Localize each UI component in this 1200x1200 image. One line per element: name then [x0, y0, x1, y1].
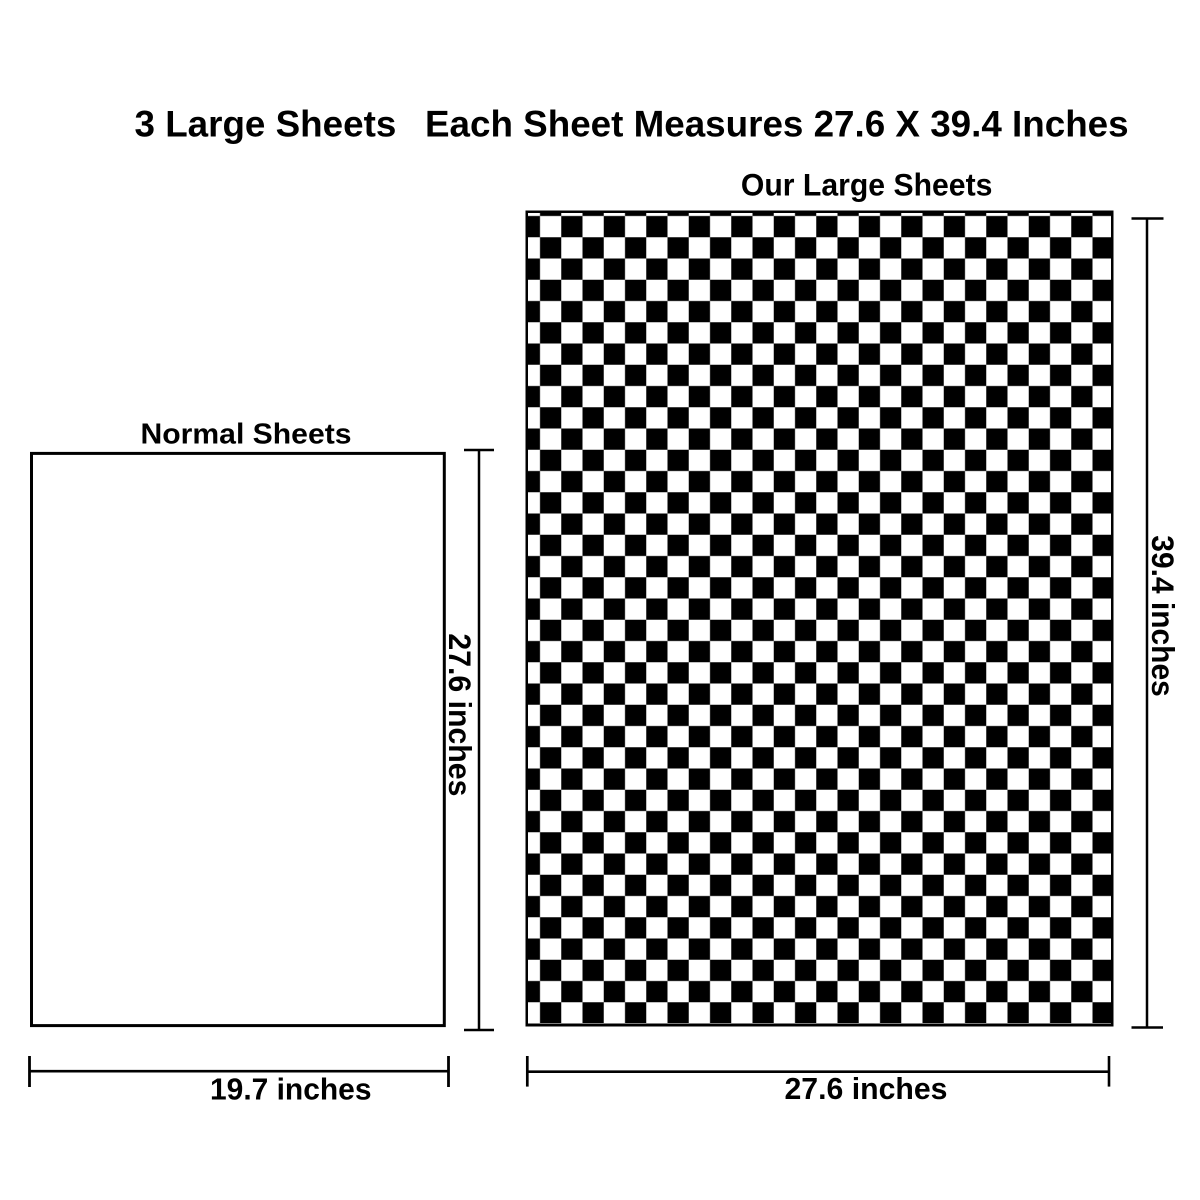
svg-text:19.7 inches: 19.7 inches	[210, 1072, 372, 1107]
svg-text:27.6 inches: 27.6 inches	[785, 1071, 948, 1106]
svg-text:Each Sheet Measures 27.6 X 39.: Each Sheet Measures 27.6 X 39.4 Inches	[425, 103, 1129, 144]
svg-text:39.4 inches: 39.4 inches	[1145, 535, 1181, 697]
svg-text:27.6 inches: 27.6 inches	[442, 633, 478, 796]
svg-text:Normal Sheets: Normal Sheets	[141, 419, 352, 451]
svg-text:Our Large Sheets: Our Large Sheets	[741, 167, 993, 202]
svg-text:3 Large Sheets: 3 Large Sheets	[135, 103, 397, 144]
